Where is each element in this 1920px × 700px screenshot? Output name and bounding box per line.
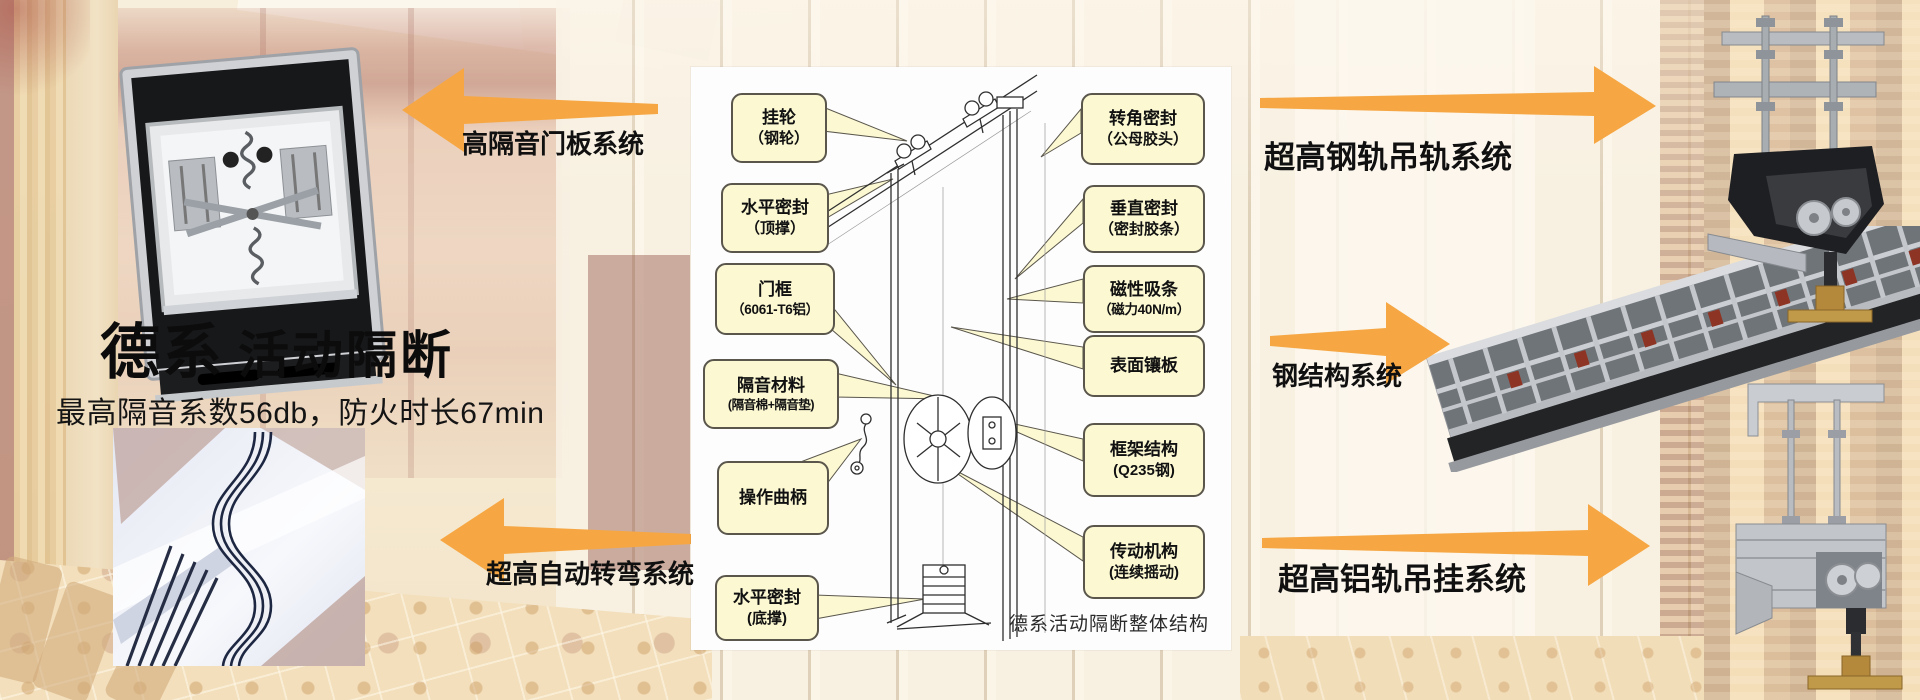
callout-text: (隔音棉+隔音垫): [728, 397, 814, 413]
callout-operating-crank: 操作曲柄: [717, 461, 829, 535]
label-alum-rail-system: 超高铝轨吊挂系统: [1278, 554, 1526, 599]
callout-text: 挂轮: [762, 107, 796, 129]
callout-text: （6061-T6铝）: [731, 301, 819, 319]
partition-infographic: 德系活动隔断 最高隔音系数56db，防火时长67min: [0, 0, 1920, 700]
callout-text: (底撑): [747, 609, 787, 629]
callout-frame-structure: 框架结构 (Q235钢): [1083, 423, 1205, 497]
label-door-panel-system: 高隔音门板系统: [462, 124, 644, 161]
callout-text: 垂直密封: [1110, 198, 1178, 220]
callout-text: (Q235钢): [1113, 461, 1175, 481]
title-product: 活动隔断: [238, 327, 454, 384]
label-steel-structure-system: 钢结构系统: [1272, 356, 1402, 393]
callout-text: 传动机构: [1110, 541, 1178, 563]
curved-track-photo: [113, 428, 365, 666]
callout-text: 磁性吸条: [1110, 279, 1178, 301]
page-subtitle: 最高隔音系数56db，防火时长67min: [56, 388, 544, 432]
callout-drive-mechanism: 传动机构 (连续摇动): [1083, 525, 1205, 599]
callout-corner-seal: 转角密封 （公母胶头）: [1081, 93, 1205, 165]
diagram-caption: 德系活动隔断整体结构: [1009, 609, 1209, 636]
callout-door-frame: 门框 （6061-T6铝）: [715, 263, 835, 335]
label-steel-rail-system: 超高钢轨吊轨系统: [1264, 132, 1512, 177]
label-auto-turn-system: 超高自动转弯系统: [486, 554, 694, 591]
callout-horizontal-seal-top: 水平密封 （顶撑）: [721, 183, 829, 253]
page-title: 德系活动隔断: [100, 304, 454, 391]
callout-sound-insulation: 隔音材料 (隔音棉+隔音垫): [703, 359, 839, 429]
callout-magnetic-strip: 磁性吸条 （磁力40N/m）: [1083, 265, 1205, 333]
callout-text: 隔音材料: [737, 375, 805, 397]
callout-text: (连续摇动): [1109, 563, 1179, 583]
callout-text: 水平密封: [733, 587, 801, 609]
callout-hanging-wheel: 挂轮 （钢轮）: [731, 93, 827, 163]
steel-hanger-photo: [1696, 6, 1912, 328]
callout-text: （顶撑）: [745, 219, 805, 239]
callout-text: 操作曲柄: [739, 487, 807, 509]
callout-text: 水平密封: [741, 197, 809, 219]
callout-text: 表面镶板: [1110, 355, 1178, 377]
callout-text: 框架结构: [1110, 439, 1178, 461]
title-brand: 德系: [100, 319, 224, 386]
callout-text: 转角密封: [1109, 108, 1177, 130]
callout-vertical-seal: 垂直密封 （密封胶条）: [1083, 185, 1205, 253]
callout-surface-panel: 表面镶板: [1083, 335, 1205, 397]
aluminium-hanger-photo: [1696, 372, 1912, 698]
callout-text: （磁力40N/m）: [1098, 301, 1190, 319]
callout-text: （密封胶条）: [1099, 220, 1189, 240]
callout-horizontal-seal-bottom: 水平密封 (底撑): [715, 575, 819, 641]
callout-text: 门框: [758, 279, 792, 301]
callout-text: （钢轮）: [749, 129, 809, 149]
callout-text: （公母胶头）: [1098, 130, 1188, 150]
structure-diagram-panel: 挂轮 （钢轮） 水平密封 （顶撑） 门框 （6061-T6铝） 隔音材料 (隔音…: [691, 67, 1231, 650]
